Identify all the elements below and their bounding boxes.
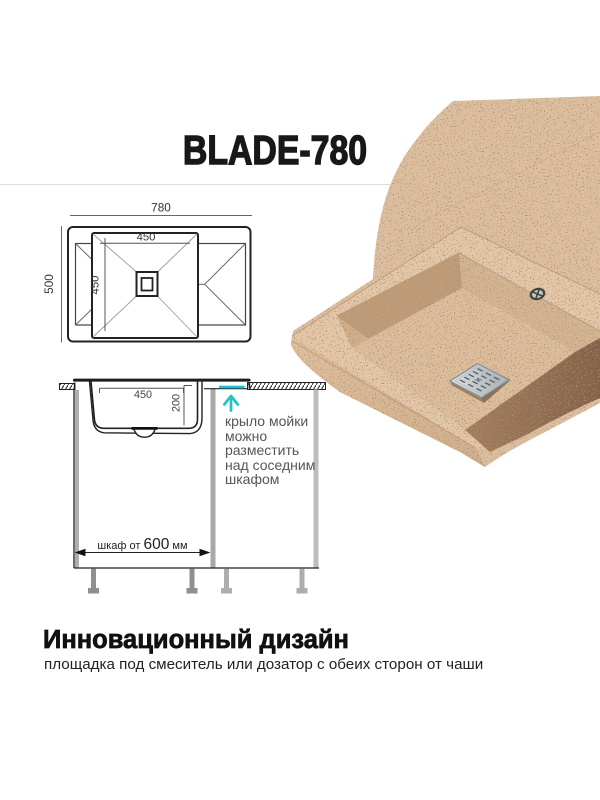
svg-text:450: 450 [134,389,152,401]
svg-text:450: 450 [137,232,156,244]
svg-text:780: 780 [151,201,171,215]
svg-text:500: 500 [42,274,56,294]
svg-text:200: 200 [171,394,183,412]
svg-text:450: 450 [90,276,102,295]
